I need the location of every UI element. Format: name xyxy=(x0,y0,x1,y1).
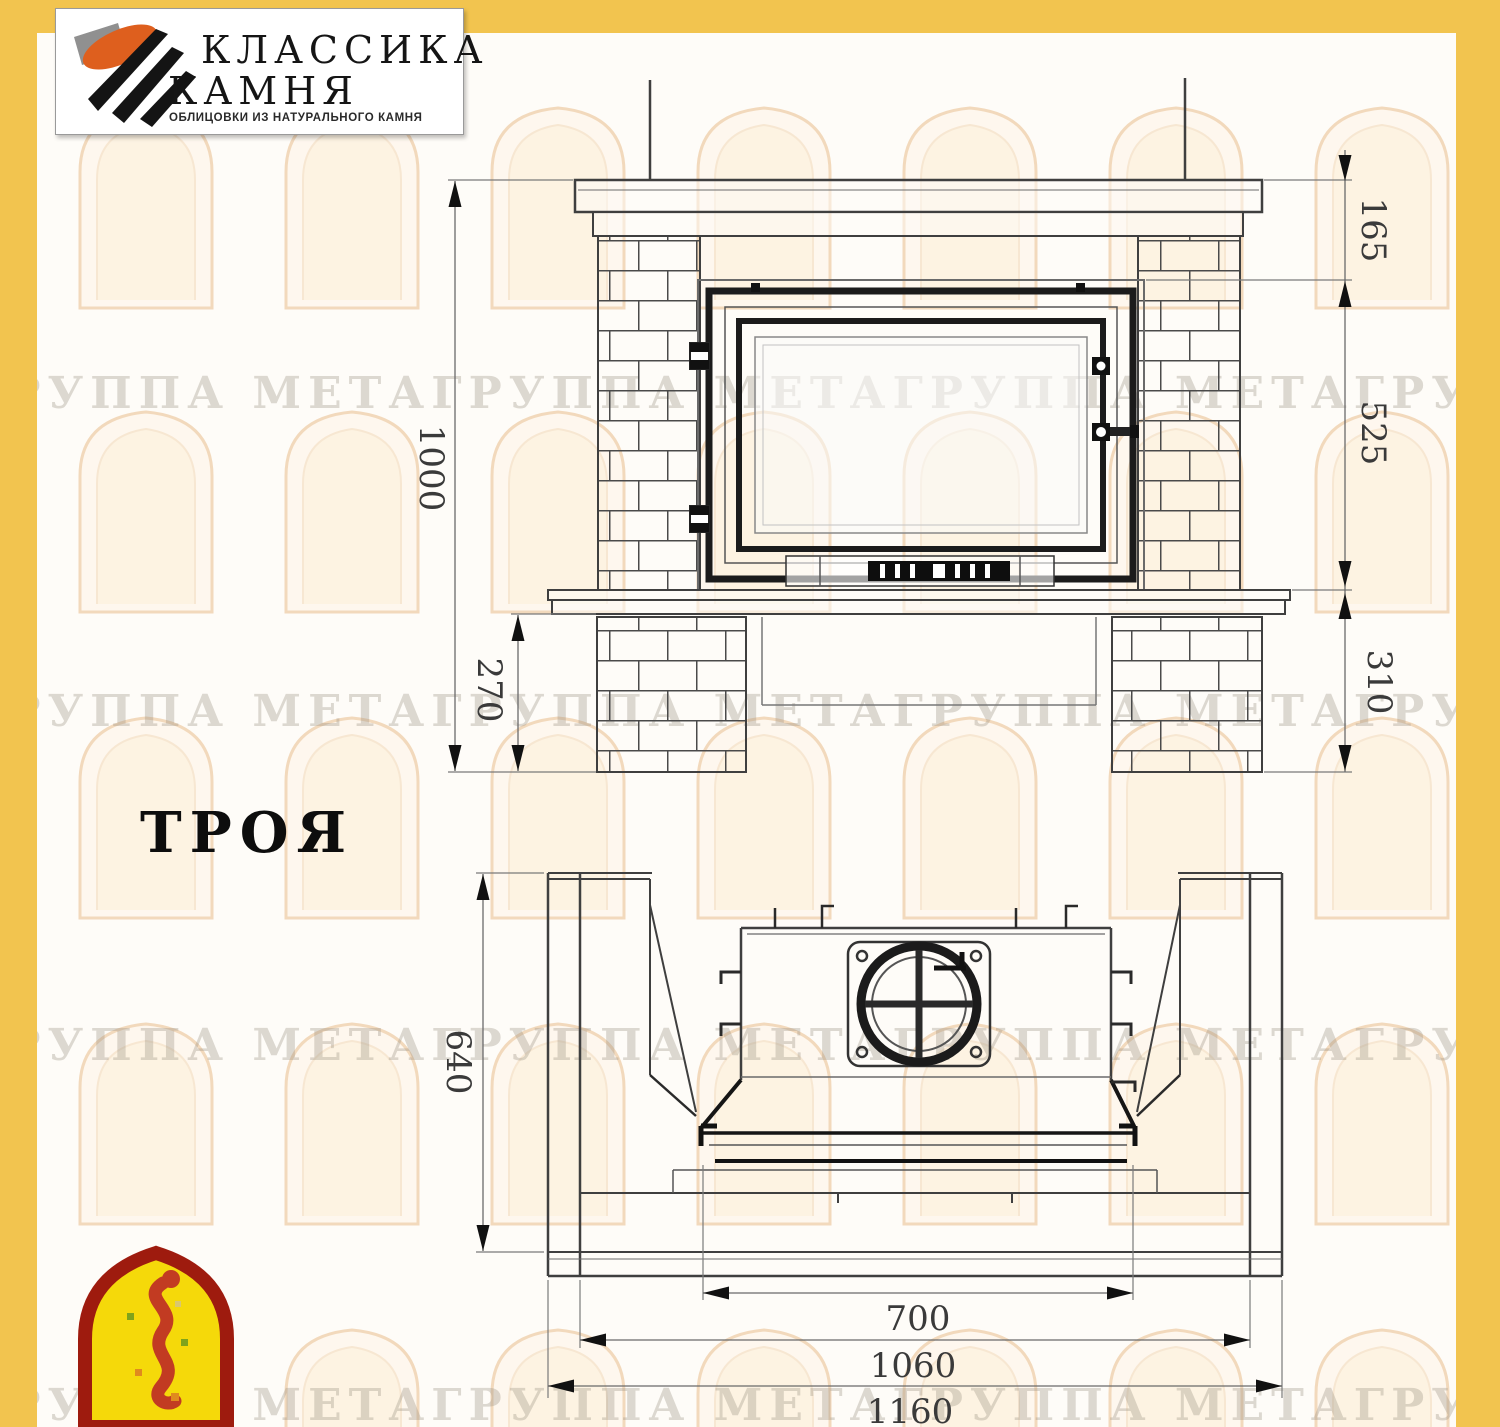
plan-view xyxy=(548,873,1282,1276)
dim-total-width: 1160 xyxy=(867,1392,954,1427)
border-right xyxy=(1456,33,1500,1427)
fireplace-technical-drawing: 165 525 310 1000 270 640 700 1060 1160 xyxy=(0,0,1500,1427)
chimney-lines xyxy=(650,78,1185,180)
flue-collar xyxy=(848,942,990,1066)
dim-firebox-height: 525 xyxy=(1353,401,1393,466)
plan-hearth xyxy=(548,1170,1282,1276)
meta-group-emblem-icon xyxy=(75,1243,237,1427)
left-brick-column xyxy=(598,236,700,590)
plan-insert xyxy=(701,906,1135,1161)
company-logo: КЛАССИКА КАМНЯ ОБЛИЦОВКИ ИЗ НАТУРАЛЬНОГО… xyxy=(55,8,464,135)
dim-firebox-width: 700 xyxy=(886,1299,951,1339)
right-pedestal xyxy=(1112,617,1262,772)
logo-subtitle: ОБЛИЦОВКИ ИЗ НАТУРАЛЬНОГО КАМНЯ xyxy=(169,112,423,124)
dim-upper-offset: 165 xyxy=(1353,198,1393,263)
front-view xyxy=(548,78,1290,772)
logo-title-line2: КАМНЯ xyxy=(168,72,359,110)
vent-grille xyxy=(786,556,1054,586)
plan-right-wall xyxy=(1137,873,1282,1276)
left-pedestal xyxy=(597,617,746,772)
hearth-shelf xyxy=(548,590,1290,614)
firebox-insert xyxy=(690,280,1144,590)
right-brick-column xyxy=(1138,236,1240,590)
door-glass xyxy=(755,337,1087,533)
plan-left-wall xyxy=(548,873,696,1276)
border-left xyxy=(0,33,37,1427)
logo-title-line1: КЛАССИКА xyxy=(201,31,488,69)
niche xyxy=(762,617,1096,705)
dim-inner-width: 1060 xyxy=(870,1346,957,1386)
dim-under-shelf-height: 270 xyxy=(469,658,509,723)
drawing-sheet: ГРУППА МЕТАГРУППА МЕТАГРУППА МЕТАГРУППА … xyxy=(0,0,1500,1427)
model-name: ТРОЯ xyxy=(140,800,354,866)
dim-base-height: 310 xyxy=(1359,650,1399,715)
dim-depth: 640 xyxy=(438,1030,478,1095)
dim-total-height: 1000 xyxy=(411,425,451,512)
mantel-shelf xyxy=(575,180,1262,236)
